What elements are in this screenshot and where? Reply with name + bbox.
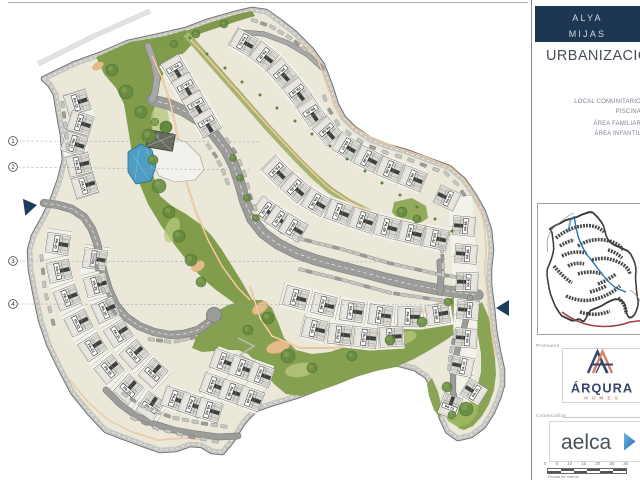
svg-text:3: 3 <box>11 258 15 265</box>
svg-text:PA-68: PA-68 <box>467 305 472 315</box>
svg-text:PA-49: PA-49 <box>405 311 409 321</box>
svg-text:PA-67: PA-67 <box>467 277 471 287</box>
svg-text:1: 1 <box>11 138 15 145</box>
svg-text:2: 2 <box>11 164 15 171</box>
svg-text:HOMES: HOMES <box>584 396 622 402</box>
svg-text:4: 4 <box>11 301 15 308</box>
svg-text:PA-66: PA-66 <box>465 249 470 259</box>
svg-text:PA-65: PA-65 <box>463 221 468 231</box>
svg-text:PA-69: PA-69 <box>465 333 470 343</box>
svg-text:aelca: aelca <box>561 431 612 454</box>
svg-text:ÁRQURA: ÁRQURA <box>570 381 632 396</box>
